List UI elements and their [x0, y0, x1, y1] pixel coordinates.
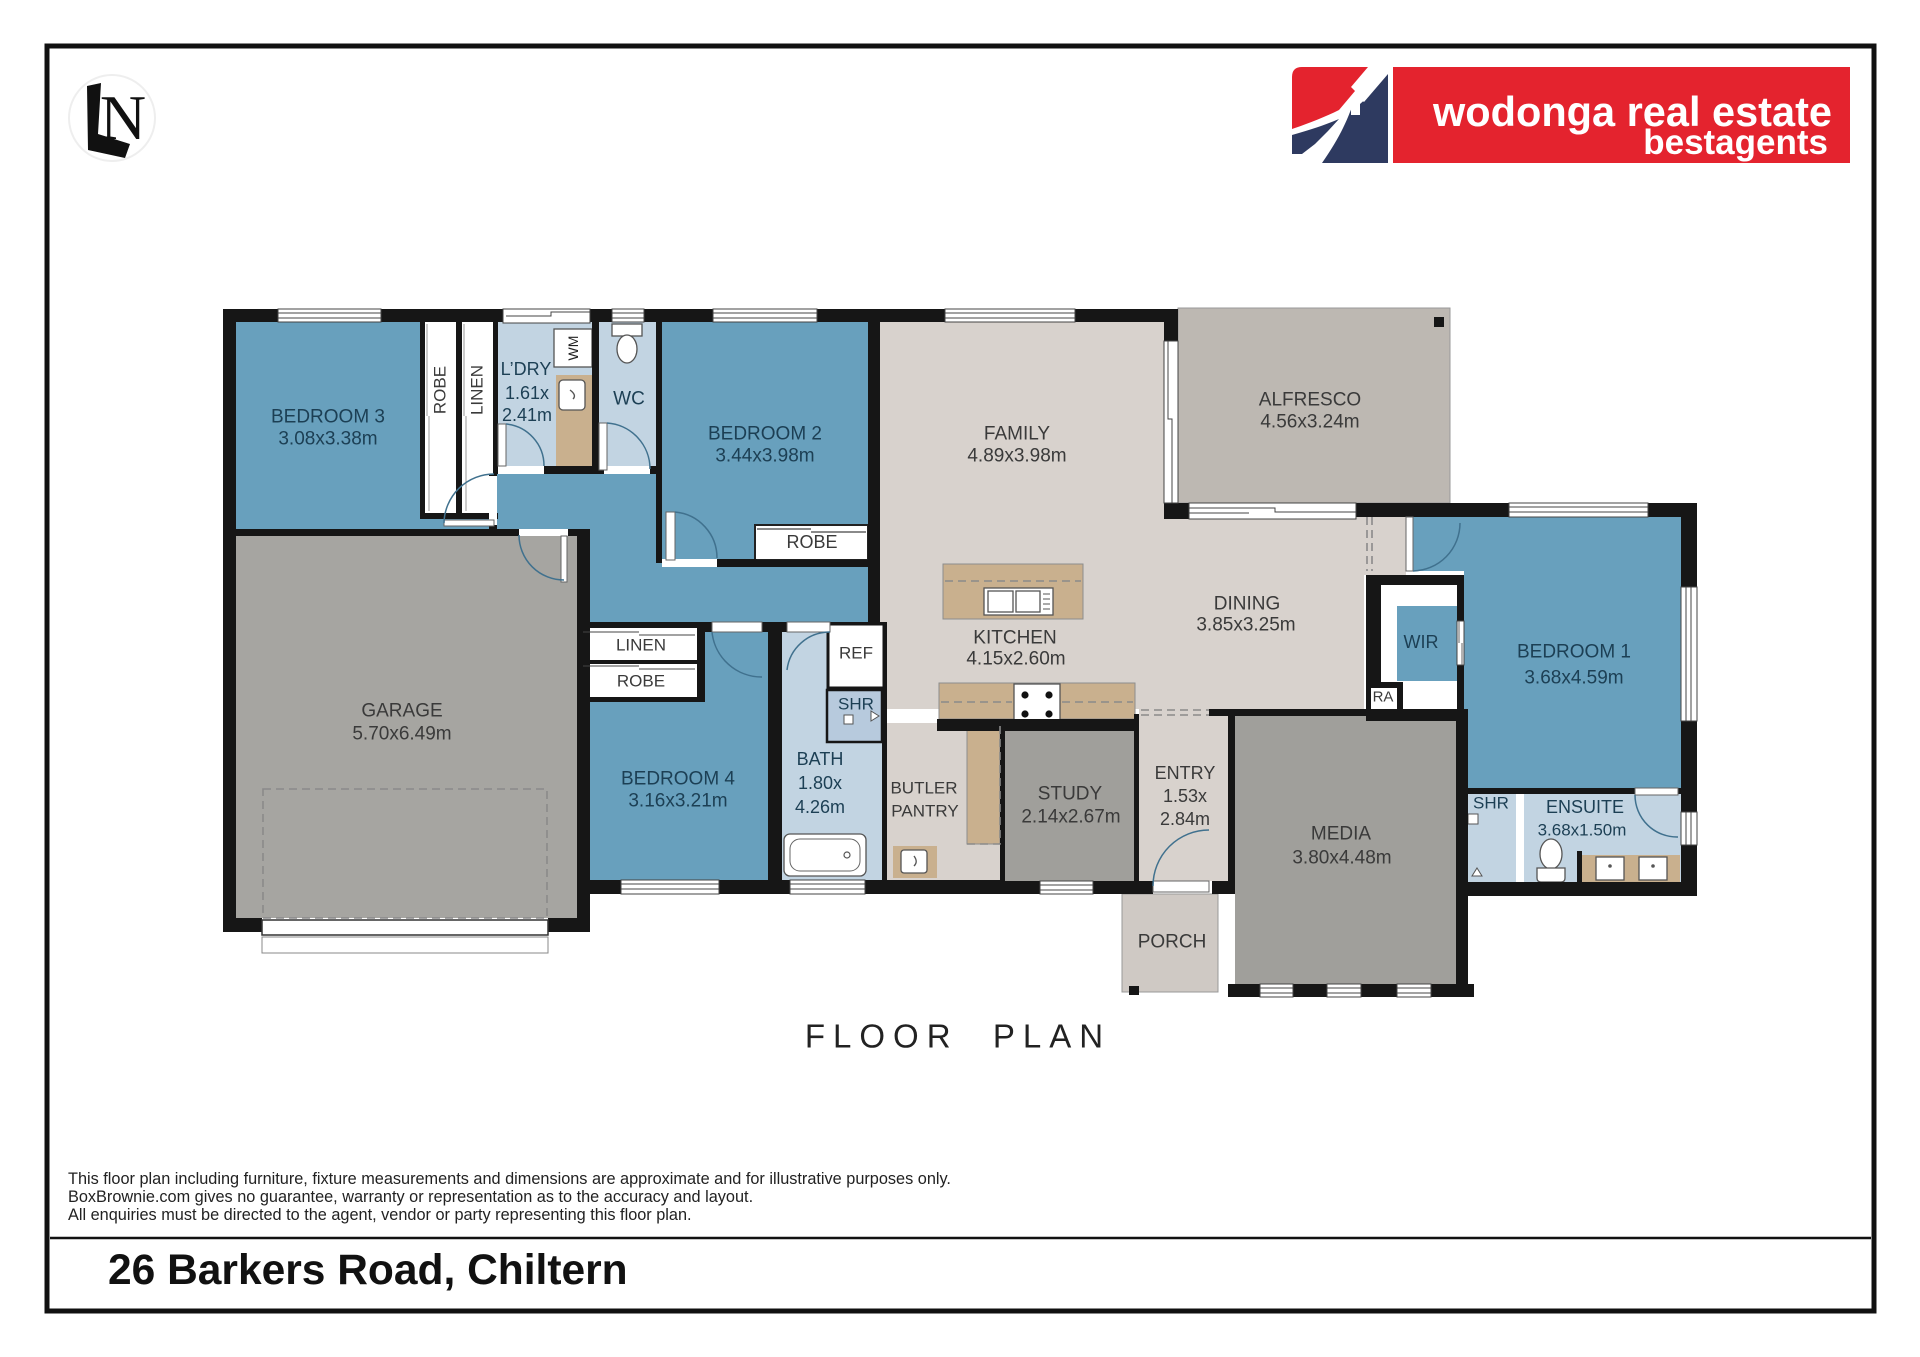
- svg-text:3.08x3.38m: 3.08x3.38m: [278, 429, 377, 450]
- svg-text:26 Barkers Road, Chiltern: 26 Barkers Road, Chiltern: [108, 1247, 628, 1294]
- svg-text:1.61x: 1.61x: [505, 383, 549, 403]
- svg-text:RA: RA: [1373, 689, 1394, 706]
- svg-text:4.26m: 4.26m: [795, 797, 845, 817]
- svg-text:PANTRY: PANTRY: [891, 802, 958, 821]
- svg-text:ROBE: ROBE: [617, 672, 665, 691]
- svg-text:3.44x3.98m: 3.44x3.98m: [715, 446, 814, 467]
- svg-text:REF: REF: [839, 644, 873, 663]
- svg-text:KITCHEN: KITCHEN: [973, 628, 1056, 649]
- svg-text:BUTLER: BUTLER: [890, 779, 957, 798]
- svg-text:All enquiries must be directed: All enquiries must be directed to the ag…: [68, 1206, 692, 1224]
- svg-text:3.16x3.21m: 3.16x3.21m: [628, 791, 727, 812]
- svg-text:2.41m: 2.41m: [502, 405, 552, 425]
- svg-text:STUDY: STUDY: [1038, 784, 1103, 805]
- svg-text:ROBE: ROBE: [786, 532, 837, 552]
- svg-text:BoxBrownie.com gives no guaran: BoxBrownie.com gives no guarantee, warra…: [68, 1188, 753, 1206]
- svg-text:WC: WC: [613, 389, 645, 410]
- svg-text:PORCH: PORCH: [1138, 932, 1207, 953]
- svg-text:BATH: BATH: [797, 749, 844, 769]
- svg-text:SHR: SHR: [1473, 794, 1509, 813]
- svg-text:3.68x4.59m: 3.68x4.59m: [1524, 668, 1623, 689]
- svg-text:WM: WM: [565, 336, 581, 361]
- svg-text:WIR: WIR: [1404, 632, 1439, 652]
- svg-text:2.14x2.67m: 2.14x2.67m: [1021, 807, 1120, 828]
- svg-text:ENSUITE: ENSUITE: [1546, 797, 1624, 817]
- svg-text:ROBE: ROBE: [431, 366, 450, 414]
- svg-text:FAMILY: FAMILY: [984, 424, 1050, 445]
- svg-text:ENTRY: ENTRY: [1155, 763, 1216, 783]
- svg-text:1.80x: 1.80x: [798, 773, 842, 793]
- svg-text:ALFRESCO: ALFRESCO: [1259, 390, 1361, 411]
- svg-text:L’DRY: L’DRY: [501, 359, 552, 379]
- svg-text:4.89x3.98m: 4.89x3.98m: [967, 446, 1066, 467]
- svg-text:1.53x: 1.53x: [1163, 786, 1207, 806]
- svg-text:FLOOR PLAN: FLOOR PLAN: [805, 1018, 1111, 1055]
- svg-text:MEDIA: MEDIA: [1311, 824, 1372, 845]
- svg-text:5.70x6.49m: 5.70x6.49m: [352, 724, 451, 745]
- svg-text:LINEN: LINEN: [468, 365, 487, 415]
- svg-text:This floor plan including furn: This floor plan including furniture, fix…: [68, 1170, 951, 1188]
- svg-text:4.15x2.60m: 4.15x2.60m: [966, 649, 1065, 670]
- svg-text:2.84m: 2.84m: [1160, 809, 1210, 829]
- svg-text:BEDROOM 4: BEDROOM 4: [621, 769, 735, 790]
- svg-text:DINING: DINING: [1214, 594, 1281, 615]
- svg-text:BEDROOM 3: BEDROOM 3: [271, 407, 385, 428]
- svg-text:3.85x3.25m: 3.85x3.25m: [1196, 615, 1295, 636]
- svg-text:3.80x4.48m: 3.80x4.48m: [1292, 848, 1391, 869]
- svg-text:bestagents: bestagents: [1643, 123, 1828, 162]
- svg-text:BEDROOM 1: BEDROOM 1: [1517, 642, 1631, 663]
- svg-text:3.68x1.50m: 3.68x1.50m: [1538, 821, 1627, 840]
- svg-text:LINEN: LINEN: [616, 636, 666, 655]
- svg-text:4.56x3.24m: 4.56x3.24m: [1260, 412, 1359, 433]
- svg-text:N: N: [100, 82, 146, 153]
- svg-text:BEDROOM 2: BEDROOM 2: [708, 424, 822, 445]
- svg-text:GARAGE: GARAGE: [361, 701, 442, 722]
- svg-text:SHR: SHR: [838, 695, 874, 714]
